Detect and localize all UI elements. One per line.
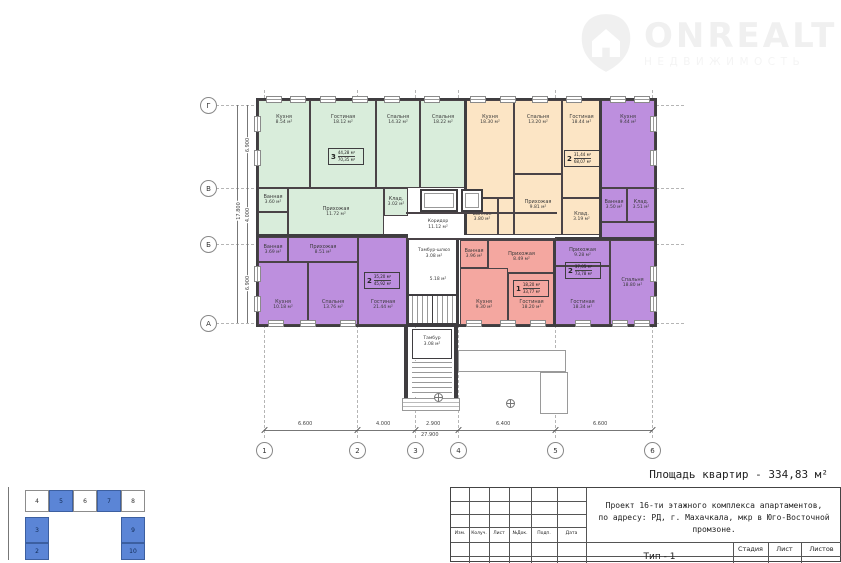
dim-1-2: 6.600 <box>297 421 313 427</box>
window <box>634 96 650 103</box>
window <box>254 116 261 132</box>
entrance-platform <box>540 372 568 414</box>
entrance-platform <box>458 350 566 372</box>
room-area: 3.69 м² <box>265 250 282 256</box>
vestibule-lock-label: Тамбур-шлюз 3.08 м² <box>405 248 463 260</box>
wall <box>555 237 657 240</box>
key-block-6: 6 <box>73 490 97 512</box>
elevator-shaft <box>420 189 458 212</box>
room-area: 3.60 м² <box>265 200 282 206</box>
room-area: 9.28 м² <box>574 253 591 259</box>
window <box>500 320 516 327</box>
window <box>290 96 306 103</box>
window <box>650 116 657 132</box>
window <box>610 96 626 103</box>
axis-bubble-6: 6 <box>644 442 661 459</box>
sheet-frame-line <box>8 487 9 560</box>
stamp-total-area: 45,92 м² <box>374 281 391 287</box>
room-wc-orange <box>498 198 514 235</box>
title-block: Изм. Колуч. Лист №Док. Подп. Дата Проект… <box>450 487 841 562</box>
tb-header-list: Лист <box>489 531 509 536</box>
room-area: 18.80 м² <box>623 283 643 289</box>
window <box>300 320 316 327</box>
room-area: 21.44 м² <box>373 305 393 311</box>
room-bedroom1-green: Спальня 14.32 м² <box>376 100 420 188</box>
title-block-line <box>509 488 510 563</box>
dim-2-3: 4.000 <box>375 421 391 427</box>
room-storage-green: Клад. 3.02 м² <box>384 188 408 216</box>
room-bathroom-green: Ванная 3.60 м² <box>258 188 288 212</box>
room-area: 18.44 м² <box>572 120 592 126</box>
room-kitchen-purple-left: Кухня 10.18 м² <box>258 262 308 325</box>
stamp-total-area: 33,77 м² <box>523 289 540 295</box>
key-block-4: 4 <box>25 490 49 512</box>
stamp-living-area: 37,05 м² <box>575 264 592 271</box>
dim-g-v: 6.900 <box>245 137 251 153</box>
entrance-steps <box>412 361 452 397</box>
entrance-vestibule-label: Тамбур 3.08 м² <box>412 336 452 348</box>
room-area: 3.19 м² <box>573 217 590 223</box>
lift-lobby-label: 5.18 м² <box>418 277 458 283</box>
room-area: 3.51 м² <box>633 205 650 211</box>
tb-header-koluch: Колуч. <box>469 531 489 536</box>
room-bedroom2-green: Спальня 18.22 м² <box>420 100 466 188</box>
dim-4-5: 6.400 <box>495 421 511 427</box>
tb-header-izm: Изм. <box>451 531 469 536</box>
room-bedroom-purple-right: Спальня 18.80 м² <box>610 240 655 325</box>
wall <box>256 234 408 237</box>
onrealt-logo-icon <box>578 12 634 74</box>
apartment-stamp-purple-right: 2 37,05 м²73,78 м² <box>565 262 601 279</box>
axis-bubble-1: 1 <box>256 442 273 459</box>
corridor-label: Коридор 11.12 м² <box>413 219 463 231</box>
room-area: 9.30 м² <box>476 305 493 311</box>
stamp-rooms-count: 2 <box>566 267 575 275</box>
survey-marker-icon <box>506 399 515 408</box>
axis-bubble-a: А <box>200 315 217 332</box>
window <box>424 96 440 103</box>
title-block-line <box>451 527 586 528</box>
window <box>266 96 282 103</box>
window <box>500 96 516 103</box>
window <box>466 320 482 327</box>
window <box>566 96 582 103</box>
dim-b-a: 6.900 <box>245 275 251 291</box>
title-block-line <box>451 514 586 515</box>
stamp-rooms-count: 2 <box>565 155 574 163</box>
room-area: 9.81 м² <box>530 205 547 211</box>
room-area: 13.20 м² <box>528 120 548 126</box>
window <box>532 96 548 103</box>
dim-total-height: 17.800 <box>236 201 242 221</box>
entrance-ramp <box>402 398 460 411</box>
key-block-10: 10 <box>121 543 145 560</box>
room-wc-green <box>258 212 288 235</box>
room-area: 14.32 м² <box>388 120 408 126</box>
key-block-5: 5 <box>49 490 73 512</box>
key-block-8: 8 <box>121 490 145 512</box>
room-bedroom-purple-left: Спальня 13.76 м² <box>308 262 358 325</box>
wall <box>464 100 467 235</box>
wall <box>454 325 458 398</box>
dim-v-b: 4.000 <box>245 207 251 223</box>
room-area: 18.34 м² <box>573 305 593 311</box>
room-living-green: Гостиная 18.12 м² <box>310 100 376 188</box>
room-area: 8.49 м² <box>513 257 530 263</box>
title-block-line <box>451 542 841 543</box>
apartment-stamp-pink: 1 18,20 м²33,77 м² <box>513 280 549 297</box>
axis-bubble-v: В <box>200 180 217 197</box>
window <box>650 266 657 282</box>
stamp-rooms-count: 1 <box>514 285 523 293</box>
dim-5-6: 6.600 <box>592 421 608 427</box>
stamp-rooms-count: 2 <box>365 277 374 285</box>
room-storage-purple-right: Клад. 3.51 м² <box>627 188 655 222</box>
apartment-stamp-green: 3 44,28 м²70,35 м² <box>328 148 364 165</box>
window <box>340 320 356 327</box>
survey-marker-icon <box>434 393 443 402</box>
room-area: 3.02 м² <box>388 202 405 208</box>
stamp-total-area: 68,07 м² <box>574 159 591 165</box>
room-area: 10.18 м² <box>273 305 293 311</box>
room-bathroom-purple-left: Ванная 3.69 м² <box>258 237 288 262</box>
room-bathroom-purple-right: Ванная 3.50 м² <box>601 188 627 222</box>
room-area: 18.22 м² <box>433 120 453 126</box>
wall <box>406 238 557 240</box>
dim-3-4: 2.900 <box>425 421 441 427</box>
tb-header-podp: Подп. <box>531 531 557 536</box>
tb-header-ndok: №Док. <box>509 531 531 536</box>
window <box>530 320 546 327</box>
window <box>612 320 628 327</box>
window <box>254 266 261 282</box>
room-area: 8.54 м² <box>276 120 293 126</box>
wall <box>599 100 602 240</box>
room-area: 3.50 м² <box>606 205 623 211</box>
stamp-living-area: 18,20 м² <box>523 282 540 289</box>
stamp-living-area: 35,20 м² <box>374 274 391 281</box>
stamp-rooms-count: 3 <box>329 153 338 161</box>
title-block-line <box>557 488 558 563</box>
stamp-living-area: 44,28 м² <box>338 150 355 157</box>
watermark-brand: ONREALT <box>644 19 837 53</box>
room-area: 18.12 м² <box>333 120 353 126</box>
key-block-7: 7 <box>97 490 121 512</box>
room-area: 18.30 м² <box>480 120 500 126</box>
tb-header-list2: Лист <box>768 545 801 553</box>
room-hall-purple-left: Прихожая 8.51 м² <box>288 237 358 262</box>
sheet-title: Тип - 1 <box>586 552 733 562</box>
room-area: 8.51 м² <box>315 250 332 256</box>
wall <box>553 240 556 325</box>
title-block-line <box>469 488 470 563</box>
window <box>320 96 336 103</box>
wall <box>406 212 557 214</box>
axis-bubble-g: Г <box>200 97 217 114</box>
window <box>650 296 657 312</box>
axis-bubble-3: 3 <box>407 442 424 459</box>
axis-bubble-b: Б <box>200 236 217 253</box>
key-block-9: 9 <box>121 517 145 543</box>
title-block-line <box>489 488 490 563</box>
project-description: Проект 16-ти этажного комплекса апартаме… <box>589 494 839 542</box>
room-area: 11.72 м² <box>326 212 346 218</box>
room-bedroom-orange: Спальня 13.20 м² <box>514 100 562 174</box>
room-kitchen-green: Кухня 8.54 м² <box>258 100 310 188</box>
apartment-stamp-purple-left: 2 35,20 м²45,92 м² <box>364 272 400 289</box>
stamp-living-area: 31,44 м² <box>574 152 591 159</box>
window <box>254 296 261 312</box>
key-block-3: 3 <box>25 517 49 543</box>
room-area: 13.76 м² <box>323 305 343 311</box>
tb-header-data: Дата <box>557 531 586 536</box>
room-kitchen-purple-right: Кухня 9.44 м² <box>601 100 655 188</box>
room-area: 3.80 м² <box>474 217 491 223</box>
room-living-orange: Гостиная 18.44 м² <box>562 100 601 198</box>
axis-bubble-2: 2 <box>349 442 366 459</box>
staircase <box>406 294 458 325</box>
title-block-line <box>451 501 586 502</box>
window <box>268 320 284 327</box>
tb-header-stadia: Стадия <box>733 545 768 553</box>
elevator-shaft <box>461 189 483 212</box>
room-storage-orange: Клад. 3.19 м² <box>562 198 601 235</box>
room-hall-green: Прихожая 11.72 м² <box>288 188 384 235</box>
dim-total-width: 27.900 <box>420 432 440 438</box>
window <box>384 96 400 103</box>
apartment-stamp-orange: 2 31,44 м²68,07 м² <box>564 150 600 167</box>
watermark-subtitle: НЕДВИЖИМОСТЬ <box>644 56 837 68</box>
tb-header-listov: Листов <box>801 545 841 553</box>
apartments-total-area: Площадь квартир - 334,83 м² <box>649 468 828 481</box>
room-kitchen-pink: Кухня 9.30 м² <box>460 268 508 325</box>
window <box>254 150 261 166</box>
stamp-total-area: 73,78 м² <box>575 271 592 277</box>
room-area: 3.96 м² <box>466 254 483 260</box>
window <box>575 320 591 327</box>
window <box>634 320 650 327</box>
room-hall-orange: Прихожая 9.81 м² <box>514 174 562 235</box>
room-area: 9.44 м² <box>620 120 637 126</box>
room-area: 18.20 м² <box>522 305 542 311</box>
onrealt-watermark: ONREALT НЕДВИЖИМОСТЬ <box>578 12 837 74</box>
axis-bubble-5: 5 <box>547 442 564 459</box>
title-block-line <box>531 488 532 563</box>
room-bathroom-pink: Ванная 3.96 м² <box>460 240 488 268</box>
key-block-2: 2 <box>25 543 49 560</box>
stamp-total-area: 70,35 м² <box>338 157 355 163</box>
window <box>470 96 486 103</box>
window <box>650 150 657 166</box>
window <box>352 96 368 103</box>
wall <box>404 325 408 398</box>
axis-bubble-4: 4 <box>450 442 467 459</box>
room-kitchen-orange: Кухня 18.30 м² <box>466 100 514 198</box>
